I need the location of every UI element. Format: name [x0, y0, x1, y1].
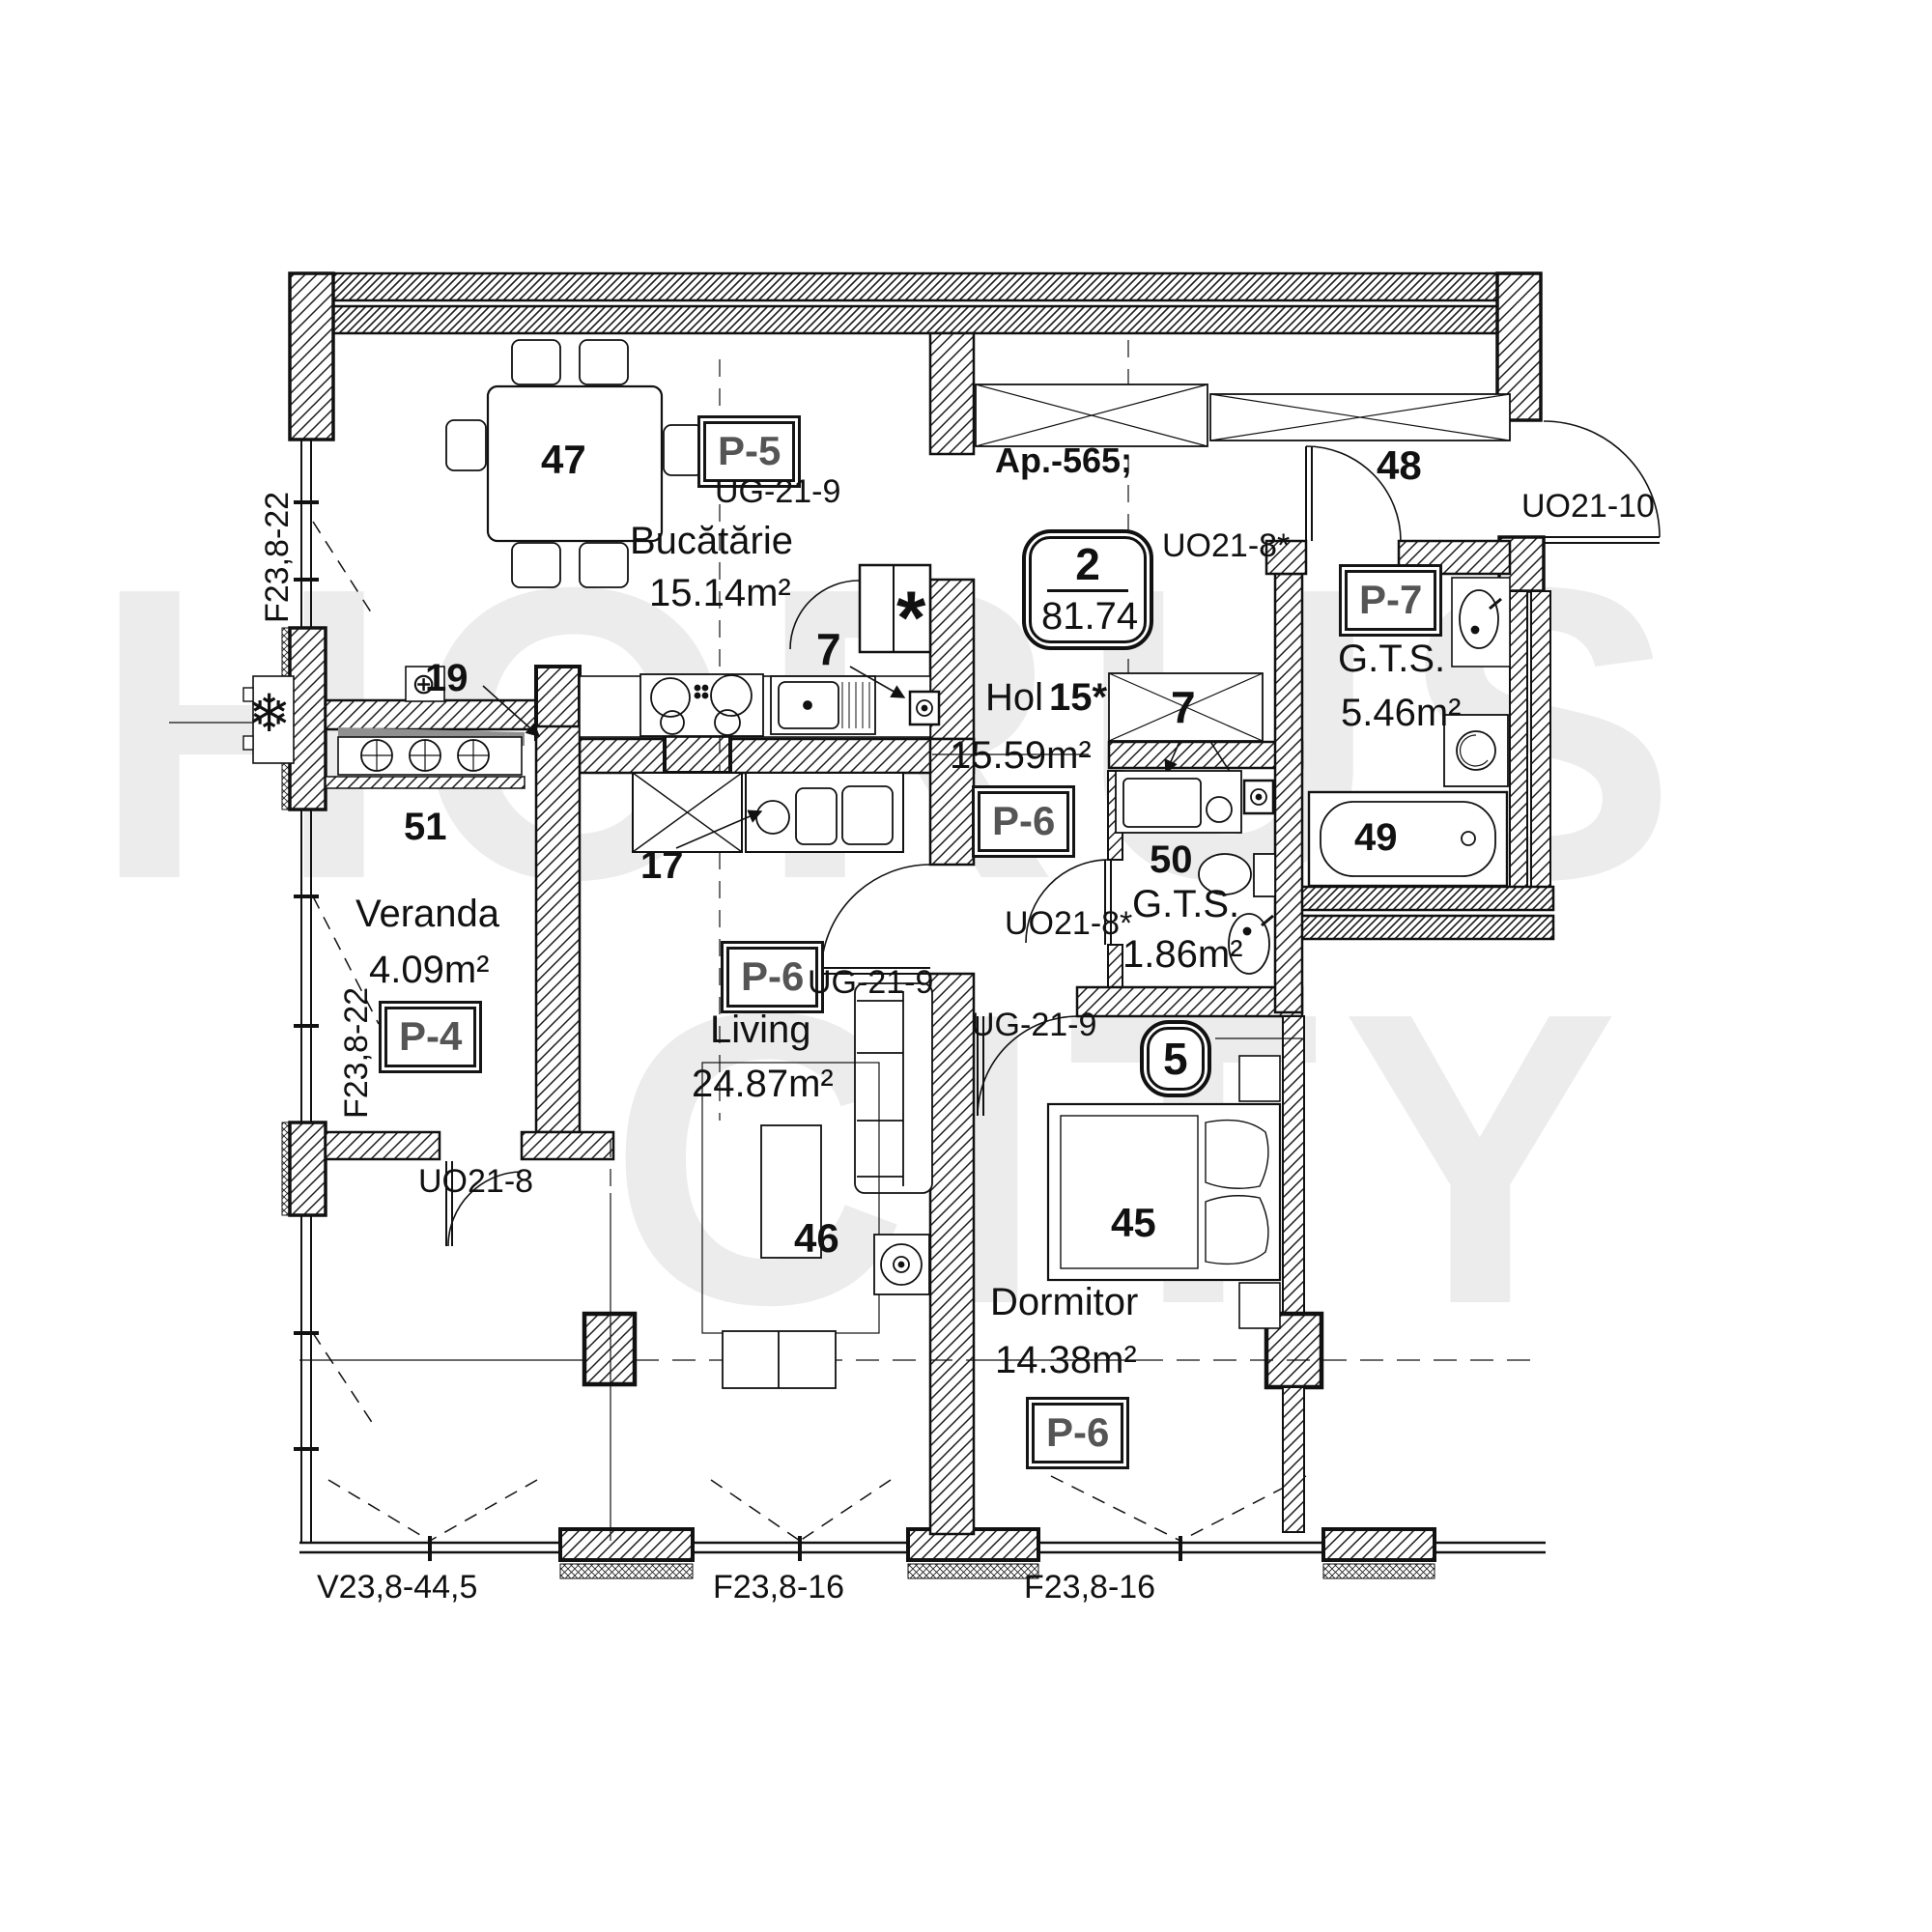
room-area-gts-mare: 5.46m² [1341, 692, 1462, 735]
hol-index: 15* [1049, 676, 1107, 720]
column-living [584, 1314, 635, 1384]
wall-dormitor-top [1077, 987, 1302, 1016]
pier-left-mid [290, 628, 326, 810]
room-area-veranda: 4.09m² [369, 949, 490, 992]
nightstand-2 [1239, 1283, 1280, 1328]
asterisk-icon: * [896, 580, 925, 655]
number-47: 47 [541, 437, 586, 483]
number-48: 48 [1377, 442, 1422, 489]
bathtub [1309, 792, 1507, 886]
wall-top-outer [333, 273, 1541, 300]
panel-p7: P-7 [1339, 564, 1442, 637]
room-name-dormitor: Dormitor [990, 1281, 1138, 1324]
number-50: 50 [1150, 838, 1193, 882]
kitchen-counter [580, 674, 930, 737]
bottom-wall [299, 1476, 1546, 1578]
number-7-kitchen: 7 [816, 623, 841, 675]
wall-kitchen-hol-upper [930, 333, 974, 454]
door-label-entrance: UO21-10 [1521, 488, 1655, 526]
hol-name: Hol [985, 676, 1043, 720]
kitchen-unit-17 [633, 773, 903, 852]
number-19: 19 [425, 657, 469, 700]
room-area-bucatarie: 15.14m² [649, 572, 791, 615]
room-name-gts-mic: G.T.S. [1132, 883, 1239, 926]
wall-veranda-bottom-right [522, 1132, 613, 1159]
number-17: 17 [640, 844, 684, 888]
axis-lines [169, 340, 1541, 1541]
sill-veranda [326, 777, 525, 788]
pier-top-left [290, 273, 333, 440]
apartment-label: Ap.-565; [995, 440, 1132, 481]
tv-unit [874, 1235, 929, 1294]
window-label-f238-living: F23,8-16 [713, 1569, 844, 1606]
kitchen-sink [771, 676, 875, 734]
wall-gts-right-a [1510, 591, 1527, 887]
tv-bench [723, 1331, 836, 1388]
door-living-UG-21-9 [821, 865, 930, 974]
room-area-hol: 15.59m² [950, 734, 1092, 778]
window-left-kitchen [294, 440, 375, 628]
apartment-badge: 2 81.74 [1022, 529, 1153, 650]
window-left-living [294, 1215, 377, 1543]
stove [640, 674, 763, 736]
snowflake-icon: ❄ [247, 688, 291, 740]
number-46: 46 [794, 1215, 839, 1262]
wall-top-inner [333, 306, 1541, 333]
panel-p4: P-4 [379, 1001, 482, 1073]
wall-veranda-right [536, 726, 580, 1132]
window-badge-5: 5 [1140, 1020, 1211, 1097]
room-name-gts-mare: G.T.S. [1338, 638, 1445, 681]
window-label-left-veranda: F23,8-22 [338, 987, 376, 1119]
wall-bath-bottom-b [1299, 916, 1553, 939]
room-name-hol: Hol 15* [985, 676, 1107, 720]
nightstand-1 [1239, 1056, 1280, 1101]
pier-bottom-1 [560, 1529, 693, 1560]
gts-sink [1452, 578, 1510, 667]
wardrobe-entry [976, 384, 1510, 446]
wall-dormitor-right-up [1283, 1016, 1304, 1314]
wall-dormitor-right-low [1283, 1387, 1304, 1532]
room-name-living: Living [710, 1009, 811, 1052]
room-area-gts-mic: 1.86m² [1122, 933, 1243, 977]
wall-veranda-bottom-left [326, 1132, 440, 1159]
door-label-gts-mic: UO21-8* [1005, 905, 1132, 943]
room-name-bucatarie: Bucătărie [630, 520, 793, 563]
number-7-hol: 7 [1171, 681, 1196, 733]
room-area-dormitor: 14.38m² [995, 1339, 1137, 1382]
wall-kitchen-bottom [580, 739, 974, 773]
panel-p6-hol: P-6 [972, 785, 1075, 858]
insulation-bottom-3 [1323, 1564, 1435, 1578]
gtsmic-counter [1116, 771, 1241, 833]
window-opening-dashes [328, 1476, 1306, 1541]
radiator [338, 737, 522, 775]
wall-gts-right-b [1531, 591, 1550, 887]
room-area-living: 24.87m² [692, 1063, 834, 1106]
pier-left-low [290, 1122, 326, 1215]
floor-plan-drawing [0, 0, 1932, 1932]
wall-hol-gts [1275, 574, 1302, 1012]
panel-p6-dormitor: P-6 [1026, 1397, 1129, 1469]
room-name-veranda: Veranda [355, 893, 499, 936]
floor-plan-page: HORUS CITY [0, 0, 1932, 1932]
window-label-f238-dormitor: F23,8-16 [1024, 1569, 1155, 1606]
door-label-living: UG-21-9 [808, 964, 933, 1002]
door-label-veranda: UO21-8 [418, 1163, 533, 1201]
number-45: 45 [1111, 1200, 1156, 1246]
wall-living-dormitor [930, 974, 974, 1534]
insulation-bottom-2 [908, 1564, 1038, 1578]
window-label-left-kitchen: F23,8-22 [259, 492, 297, 623]
wall-hol-gtsmic [1109, 742, 1302, 768]
badge-rooms: 2 [1041, 541, 1134, 587]
number-51: 51 [404, 806, 447, 849]
door-label-kitchen: UG-21-9 [715, 473, 840, 511]
door-label-dormitor: UG-21-9 [971, 1007, 1096, 1044]
window-label-v238: V23,8-44,5 [317, 1569, 477, 1606]
sofa [855, 983, 932, 1193]
door-label-gts: UO21-8* [1162, 527, 1290, 565]
furniture [243, 340, 1510, 1388]
number-49: 49 [1354, 816, 1398, 860]
badge-area: 81.74 [1041, 594, 1134, 639]
pier-bottom-3 [1323, 1529, 1435, 1560]
insulation-bottom-1 [560, 1564, 693, 1578]
wall-bath-bottom-a [1299, 887, 1553, 910]
